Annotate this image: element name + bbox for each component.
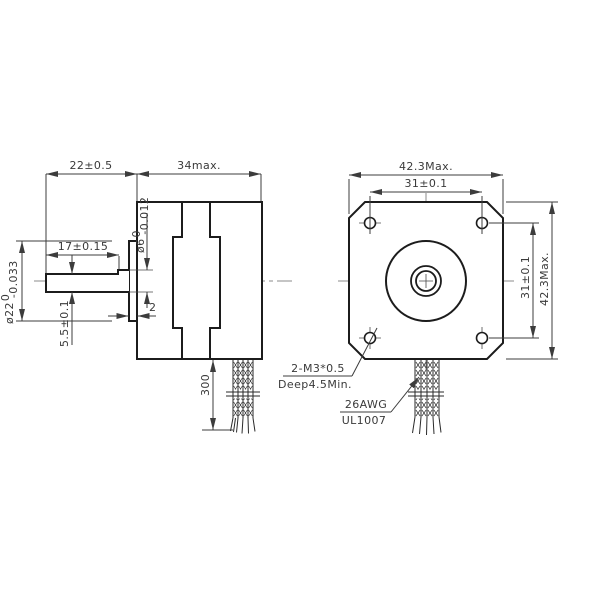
wire-frayed-ends bbox=[231, 418, 256, 434]
dim-text-shaft-length: 22±0.5 bbox=[69, 159, 112, 172]
dim-body-length: 34max. bbox=[137, 159, 261, 201]
dim-text-hole-pitch-vertical: 31±0.1 bbox=[519, 256, 532, 299]
dim-text-pilot-depth: 2 bbox=[149, 301, 156, 314]
dim-shaft-length: 22±0.5 bbox=[46, 159, 137, 273]
note-text-lead-wire-line2: UL1007 bbox=[342, 414, 387, 427]
dim-flat-height: 5.5±0.1 bbox=[58, 255, 72, 347]
note-text-tapped-hole-line2: Deep4.5Min. bbox=[278, 378, 352, 391]
dim-text-flat-length: 17±0.15 bbox=[58, 240, 109, 253]
side-view-lead-wires bbox=[226, 360, 260, 434]
motor-body-side bbox=[137, 202, 262, 359]
motor-shaft bbox=[46, 270, 129, 292]
dim-text-hole-pitch-horizontal: 31±0.1 bbox=[404, 177, 447, 190]
dim-text-body-length: 34max. bbox=[177, 159, 221, 172]
mounting-hole-bottom-right bbox=[477, 333, 488, 344]
dim-text-lead-length: 300 bbox=[199, 374, 212, 396]
note-text-lead-wire-line1: 26AWG bbox=[345, 398, 387, 411]
dim-text-pilot-diameter: ø220-0.033 bbox=[0, 260, 20, 324]
dim-text-flat-height: 5.5±0.1 bbox=[58, 300, 71, 347]
drawing-canvas: 22±0.5 34max. 17±0.15 ø60-0.012 ø220-0.0… bbox=[0, 0, 600, 600]
note-text-tapped-hole-line1: 2-M3*0.5 bbox=[291, 362, 345, 375]
front-view: 42.3Max. 31±0.1 31±0.1 42.3Max. 2-M bbox=[278, 160, 558, 435]
dim-text-width-max: 42.3Max. bbox=[399, 160, 453, 173]
dim-flat-length: 17±0.15 bbox=[46, 240, 119, 269]
side-view: 22±0.5 34max. 17±0.15 ø60-0.012 ø220-0.0… bbox=[0, 159, 296, 434]
wire-frayed-ends bbox=[413, 417, 442, 435]
front-view-lead-wires bbox=[408, 360, 444, 435]
dim-text-height-max: 42.3Max. bbox=[538, 252, 551, 306]
technical-drawing: 22±0.5 34max. 17±0.15 ø60-0.012 ø220-0.0… bbox=[0, 0, 600, 600]
